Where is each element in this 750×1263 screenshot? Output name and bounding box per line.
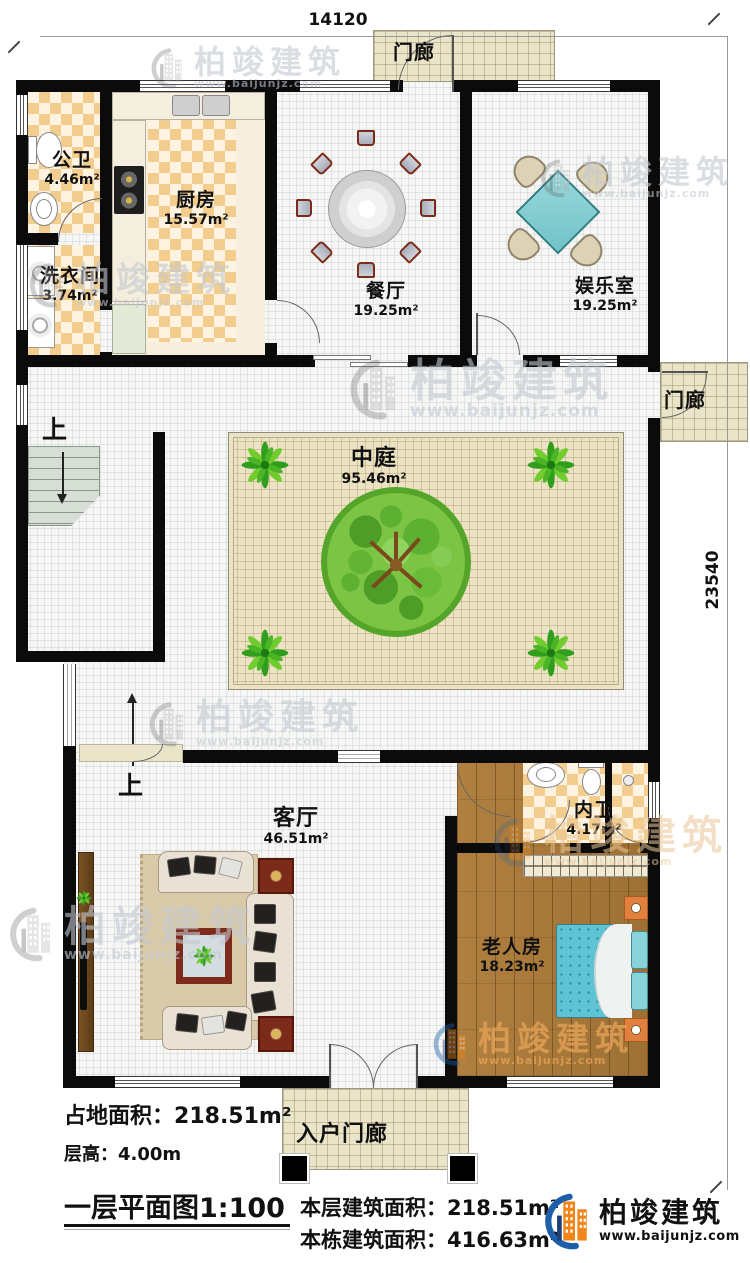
palm-plant [526, 628, 576, 678]
brand-logo-icon [543, 1192, 593, 1250]
stair-arrowhead [57, 494, 67, 504]
wall-segment [453, 80, 518, 92]
total-area-label: 本栋建筑面积： [300, 1228, 447, 1252]
floor-drain [623, 775, 634, 786]
dining-chair [296, 199, 312, 217]
side-table [258, 1016, 294, 1052]
porch-right-label: 门廊 [664, 384, 706, 413]
room-area: 19.25m² [545, 298, 665, 314]
brand-url: www.baijunjz.com [599, 1229, 740, 1244]
room-area: 18.23m² [452, 959, 572, 975]
room-area: 95.46m² [314, 471, 434, 487]
wall-segment [640, 843, 648, 853]
room-name: 厨房 [136, 190, 256, 212]
window [507, 1076, 613, 1088]
room-label-living: 客厅 46.51m² [236, 806, 356, 847]
nightstand [624, 1018, 648, 1042]
room-label-inner-bath: 内卫 4.17m² [534, 800, 654, 838]
dimension-height: 23540 [703, 542, 723, 618]
room-label-recreation: 娱乐室 19.25m² [545, 276, 665, 314]
stair-arrow [62, 452, 64, 496]
wall-segment [240, 1076, 330, 1088]
cushion [201, 1015, 225, 1036]
land-area-label: 占地面积： [64, 1104, 174, 1129]
dimension-line-right [727, 36, 728, 1190]
wall-segment [265, 343, 277, 367]
wall-segment [523, 355, 560, 367]
room-label-public-bath: 公卫 4.46m² [12, 150, 132, 188]
wall-segment [457, 843, 523, 853]
dining-table [328, 170, 406, 248]
kitchen-tile [148, 118, 236, 342]
plan-title: 一层平面图1:100 [64, 1186, 285, 1225]
fridge [112, 304, 146, 354]
pillow [631, 931, 648, 969]
wall-segment [63, 746, 76, 1088]
wardrobe [523, 855, 648, 877]
floor-height-label: 层高： [64, 1144, 118, 1165]
sink-basin [536, 767, 556, 782]
dining-chair [420, 199, 436, 217]
floor-height-value: 4.00m [118, 1144, 181, 1165]
sink-basin [36, 199, 52, 219]
wall-segment [380, 750, 648, 763]
stairs-up-label: 上 [42, 410, 67, 446]
room-area: 3.74m² [10, 288, 130, 304]
window [300, 80, 390, 92]
bed-blanket [594, 924, 632, 1018]
porch-column [450, 1156, 475, 1181]
room-name: 内卫 [534, 800, 654, 822]
door-leaf [476, 313, 478, 355]
toilet [582, 769, 601, 795]
washing-machine [25, 298, 55, 348]
palm-plant [240, 440, 290, 490]
wall-segment [63, 1076, 115, 1088]
wall-segment [648, 80, 660, 372]
room-name: 客厅 [236, 806, 356, 831]
kitchen-sink [202, 95, 230, 116]
watermark-name: 柏竣建筑 [194, 46, 346, 78]
room-label-laundry: 洗衣间 3.74m² [10, 266, 130, 304]
nightstand [624, 896, 648, 920]
wall-segment [16, 651, 165, 662]
room-label-kitchen: 厨房 15.57m² [136, 190, 256, 228]
palm-plant [240, 628, 290, 678]
dimension-line-top [40, 36, 728, 37]
title-underline-thin [64, 1229, 290, 1230]
window [560, 355, 617, 367]
side-table [258, 858, 294, 894]
door-leaf [452, 35, 454, 92]
door-leaf [662, 371, 708, 373]
dimension-tick [708, 13, 721, 26]
land-area-row: 占地面积：218.51m² [64, 1098, 291, 1130]
sliding-door [313, 355, 371, 360]
porch-column [282, 1156, 307, 1181]
cushion [175, 1013, 199, 1033]
wall-segment [16, 233, 58, 245]
wall-segment [16, 80, 140, 92]
title-underline [64, 1224, 290, 1227]
wall-segment [460, 92, 472, 367]
room-name: 餐厅 [326, 281, 446, 303]
dimension-tick [8, 41, 21, 54]
room-label-atrium: 中庭 95.46m² [314, 446, 434, 487]
wall-segment [183, 750, 338, 763]
room-name: 公卫 [12, 150, 132, 172]
room-label-elder-room: 老人房 18.23m² [452, 937, 572, 975]
cushion [225, 1010, 248, 1031]
room-name: 老人房 [452, 937, 572, 959]
window [338, 750, 380, 763]
window [63, 664, 76, 746]
wall-segment [16, 425, 28, 662]
cushion [254, 904, 276, 924]
cushion [254, 962, 276, 982]
cushion [193, 855, 216, 875]
cushion [167, 857, 191, 878]
window [140, 80, 225, 92]
room-name: 娱乐室 [545, 276, 665, 298]
wall-segment [648, 818, 660, 1088]
door-leaf [416, 1044, 418, 1088]
room-area: 15.57m² [136, 212, 256, 228]
window [115, 1076, 240, 1088]
tv [80, 922, 87, 1010]
wall-segment [613, 1076, 660, 1088]
brand-name: 柏竣建筑 [599, 1198, 740, 1229]
wall-segment [100, 352, 112, 367]
cushion [250, 990, 276, 1014]
wall-segment [225, 80, 300, 92]
cushion [253, 931, 278, 954]
room-area: 4.46m² [12, 172, 132, 188]
wall-segment [265, 92, 277, 300]
stairs-up-label: 上 [118, 766, 143, 802]
room-name: 中庭 [314, 446, 434, 471]
door-leaf [329, 1044, 331, 1088]
window [16, 385, 28, 425]
dimension-width: 14120 [298, 10, 378, 30]
total-area-row: 本栋建筑面积：416.63m² [300, 1224, 559, 1254]
floor-area-row: 本层建筑面积：218.51m² [300, 1192, 559, 1222]
dining-chair [357, 262, 375, 278]
window [16, 95, 28, 135]
wall-segment [617, 355, 660, 367]
porch-top-label: 门廊 [393, 36, 435, 65]
door-threshold [79, 744, 183, 762]
window [518, 80, 610, 92]
courtyard-tree [320, 486, 472, 638]
wall-segment [417, 1076, 507, 1088]
floor-area-label: 本层建筑面积： [300, 1196, 447, 1220]
direction-arrowhead [127, 693, 137, 703]
palm-plant [526, 440, 576, 490]
exterior-notch [16, 662, 63, 1088]
room-label-dining: 餐厅 19.25m² [326, 281, 446, 319]
land-area-value: 218.51m² [174, 1104, 291, 1129]
sliding-door [350, 362, 408, 367]
kitchen-sink [172, 95, 200, 116]
wall-segment [570, 843, 610, 853]
room-area: 19.25m² [326, 303, 446, 319]
table-plant [193, 945, 215, 967]
cabinet-plant [76, 890, 92, 906]
room-area: 46.51m² [236, 831, 356, 847]
wall-segment [16, 80, 28, 95]
dining-chair [357, 130, 375, 146]
room-area: 4.17m² [534, 822, 654, 838]
brand-logo: 柏竣建筑 www.baijunjz.com [543, 1192, 740, 1250]
wall-segment [153, 432, 165, 662]
pillow [631, 972, 648, 1010]
wall-segment [648, 418, 660, 782]
room-name: 洗衣间 [10, 266, 130, 288]
entry-porch-label: 入户门廊 [296, 1116, 388, 1148]
floor-plan-page: 上 上 公卫 4.46m² 洗衣间 3.74m² 厨房 15.57m² 餐厅 [0, 0, 750, 1263]
floor-height-row: 层高：4.00m [64, 1140, 181, 1166]
